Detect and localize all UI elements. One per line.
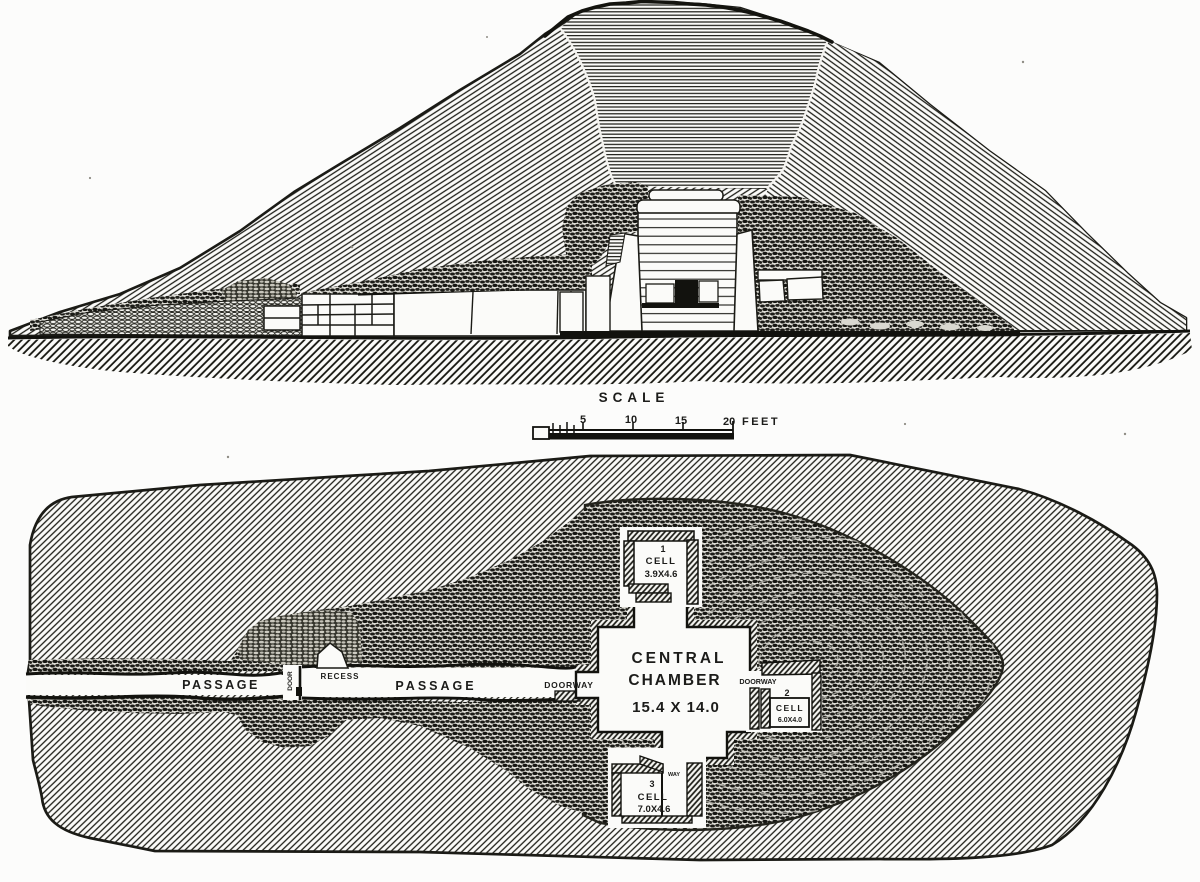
svg-text:7.0X4.6: 7.0X4.6	[638, 804, 671, 815]
svg-text:PASSAGE: PASSAGE	[395, 679, 476, 693]
svg-text:15.4 X 14.0: 15.4 X 14.0	[632, 699, 720, 716]
svg-text:CELL: CELL	[638, 792, 669, 803]
svg-text:DOORWAY: DOORWAY	[544, 680, 594, 690]
svg-text:1: 1	[660, 544, 665, 554]
svg-text:CHAMBER: CHAMBER	[628, 672, 721, 689]
svg-text:CELL: CELL	[776, 703, 804, 713]
svg-text:10: 10	[625, 414, 637, 426]
svg-text:RECESS: RECESS	[321, 672, 360, 681]
svg-text:SCALE: SCALE	[599, 390, 670, 405]
svg-text:3.9X4.6: 3.9X4.6	[645, 569, 678, 580]
svg-text:PASSAGE: PASSAGE	[182, 678, 260, 692]
svg-text:15: 15	[675, 415, 687, 427]
svg-text:DOORWAY: DOORWAY	[739, 677, 776, 686]
svg-text:6.0X4.0: 6.0X4.0	[778, 717, 802, 724]
svg-text:WAY: WAY	[668, 772, 680, 778]
svg-text:CENTRAL: CENTRAL	[631, 650, 726, 667]
svg-text:2: 2	[784, 688, 789, 698]
svg-text:DOOR: DOOR	[287, 671, 294, 691]
svg-text:FEET: FEET	[742, 416, 780, 428]
svg-text:CELL: CELL	[646, 556, 677, 567]
svg-text:3: 3	[649, 779, 654, 789]
